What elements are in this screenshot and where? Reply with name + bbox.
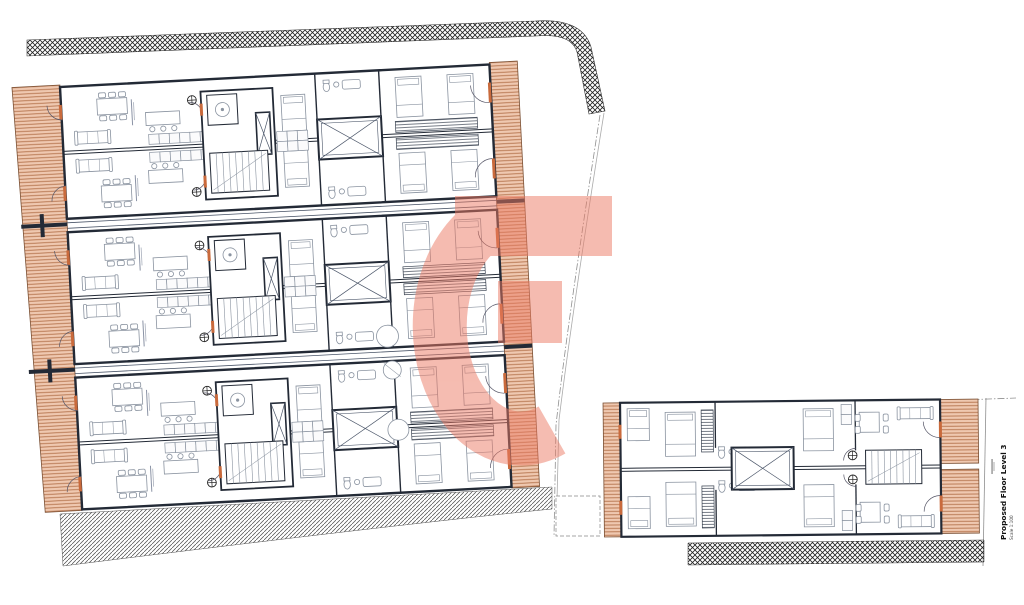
kitchen-counter <box>196 441 207 452</box>
kitchen-counter <box>198 295 209 306</box>
kitchen-counter <box>285 286 296 297</box>
door-threshold <box>618 425 621 439</box>
pillow <box>288 178 307 185</box>
kitchen-counter <box>160 151 171 162</box>
kitchen-counter <box>185 441 196 452</box>
sofa-arm <box>74 131 78 145</box>
floor-plan-sheet: Proposed Floor Level 3 Scale 1:100 <box>0 0 1024 605</box>
sofa <box>76 131 109 145</box>
stool <box>187 416 192 421</box>
chair <box>112 348 119 353</box>
bathroom-fixture <box>336 332 342 336</box>
bathroom-fixture <box>339 189 344 194</box>
chair <box>100 116 107 121</box>
kitchen-counter <box>305 285 316 296</box>
small-annotation-mark <box>994 462 995 471</box>
sofa-arm <box>897 407 900 420</box>
chair <box>883 414 888 421</box>
stool <box>174 162 179 167</box>
stool <box>189 453 194 458</box>
kitchen-counter <box>298 140 309 151</box>
kitchen-counter <box>169 133 180 144</box>
dining-table <box>101 184 132 202</box>
bathroom-fixture <box>344 477 350 481</box>
pillow <box>303 469 322 476</box>
bathroom-fixture <box>354 479 359 484</box>
pillow <box>669 518 694 524</box>
drawing-scale: Scale 1:100 <box>1009 515 1014 540</box>
chair <box>114 383 121 388</box>
kitchen-counter <box>159 133 170 144</box>
kitchen-counter <box>179 132 190 143</box>
sofa <box>92 421 125 435</box>
dining-table <box>116 475 147 493</box>
kitchen-counter <box>150 152 161 163</box>
watermark-top-bar <box>455 196 612 256</box>
pillow <box>449 76 470 83</box>
kitchen-counter <box>164 424 175 435</box>
chair <box>135 405 142 410</box>
party-wall-hatch-south <box>688 540 984 565</box>
small-annotation-mark <box>992 459 993 474</box>
kitchen-counter <box>205 422 216 433</box>
sofa <box>84 276 117 290</box>
sofa-arm <box>116 303 120 317</box>
pillow <box>418 475 439 482</box>
chair <box>121 324 128 329</box>
sofa-arm <box>83 304 87 318</box>
chair <box>123 178 130 183</box>
kitchen-counter <box>187 278 198 289</box>
bathroom-fixture <box>342 79 360 89</box>
stool <box>176 417 181 422</box>
kitchen-counter <box>302 421 313 432</box>
chair <box>124 383 131 388</box>
pillow <box>403 184 424 191</box>
kitchen-counter <box>188 296 199 307</box>
kitchen-counter <box>180 150 191 161</box>
bathroom-fixture <box>719 481 725 484</box>
door-threshold <box>219 466 223 478</box>
pillow <box>806 411 831 417</box>
kitchen-counter <box>165 442 176 453</box>
pillow <box>807 519 832 525</box>
bathroom-fixture <box>357 370 375 380</box>
bathroom-fixture <box>349 372 354 377</box>
kitchen-counter <box>177 278 188 289</box>
kitchen-counter <box>149 134 160 145</box>
kitchen-counter <box>295 286 306 297</box>
dashed-outline-area <box>556 496 600 536</box>
bathroom-fixture <box>363 477 381 487</box>
chair <box>114 202 121 207</box>
stool <box>179 271 184 276</box>
pillow <box>283 96 302 103</box>
bathroom-fixture <box>329 187 335 191</box>
kitchen-island <box>148 169 183 184</box>
door-threshold <box>211 321 215 333</box>
stool <box>168 271 173 276</box>
pillow <box>291 242 310 249</box>
sofa <box>900 516 932 527</box>
kitchen-counter <box>292 432 303 443</box>
kitchen-counter <box>292 422 303 433</box>
sofa-arm <box>91 450 95 464</box>
stool <box>167 454 172 459</box>
wardrobe <box>701 410 713 452</box>
kitchen-counter <box>277 131 288 142</box>
floor-plan-canvas: Proposed Floor Level 3 Scale 1:100 <box>0 0 1024 605</box>
sofa <box>78 158 111 172</box>
sofa-arm <box>123 420 127 434</box>
chair <box>856 504 861 511</box>
pillow <box>299 387 318 394</box>
kitchen-counter <box>312 421 323 432</box>
kitchen-island <box>161 401 196 416</box>
chair <box>127 260 134 265</box>
wardrobe <box>702 486 714 528</box>
kitchen-counter <box>305 275 316 286</box>
stool <box>163 163 168 168</box>
small-building-group <box>603 399 979 537</box>
kitchen-island <box>156 314 191 329</box>
kitchen-counter <box>842 520 852 530</box>
kitchen-counter <box>157 297 168 308</box>
stool <box>159 309 164 314</box>
kitchen-counter <box>174 424 185 435</box>
title-block: Proposed Floor Level 3 Scale 1:100 <box>992 444 1015 540</box>
stool <box>172 125 177 130</box>
chair <box>98 93 105 98</box>
kitchen-counter <box>175 442 186 453</box>
chair <box>120 115 127 120</box>
chair <box>119 493 126 498</box>
kitchen-counter <box>190 132 201 143</box>
pillow <box>668 414 693 420</box>
sofa-arm <box>90 422 94 436</box>
door-threshold <box>215 394 219 406</box>
chair <box>110 115 117 120</box>
stool <box>178 453 183 458</box>
chair <box>131 324 138 329</box>
sofa-arm <box>107 129 111 143</box>
chair <box>106 238 113 243</box>
dining-table <box>109 330 140 348</box>
chair <box>107 261 114 266</box>
pillow <box>455 181 476 188</box>
chair <box>125 406 132 411</box>
bathroom-fixture <box>334 82 339 87</box>
bathroom-fixture <box>347 334 352 339</box>
stool <box>152 163 157 168</box>
stool <box>181 308 186 313</box>
chair <box>111 325 118 330</box>
bathroom-fixture <box>331 225 337 229</box>
stool <box>165 417 170 422</box>
chair <box>115 406 122 411</box>
kitchen-counter <box>841 404 851 414</box>
chair <box>883 426 888 433</box>
kitchen-counter <box>191 150 202 161</box>
dining-table <box>97 98 128 116</box>
sofa <box>93 449 126 463</box>
sofa-arm <box>115 275 119 289</box>
small-building-plan <box>603 399 984 565</box>
sofa-arm <box>109 157 113 171</box>
terrace-strip-east <box>941 469 980 533</box>
door-threshold <box>619 501 622 515</box>
kitchen-counter <box>197 277 208 288</box>
kitchen-counter <box>313 431 324 442</box>
chair <box>124 201 131 206</box>
sofa <box>85 304 118 318</box>
kitchen-counter <box>842 510 852 520</box>
stool <box>170 308 175 313</box>
chair <box>104 202 111 207</box>
bathroom-fixture <box>338 371 344 375</box>
chair <box>126 237 133 242</box>
chair <box>132 347 139 352</box>
chair <box>855 414 860 421</box>
chair <box>103 180 110 185</box>
bathroom-fixture <box>355 331 373 341</box>
terrace-strip-east <box>940 399 979 463</box>
chair <box>884 504 889 511</box>
kitchen-counter <box>184 423 195 434</box>
bathroom-fixture <box>341 227 346 232</box>
dining-table <box>104 243 135 261</box>
kitchen-counter <box>297 130 308 141</box>
kitchen-counter <box>295 276 306 287</box>
kitchen-island <box>145 111 180 126</box>
kitchen-counter <box>287 131 298 142</box>
kitchen-counter <box>170 151 181 162</box>
bathroom-fixture <box>348 186 366 196</box>
kitchen-counter <box>303 431 314 442</box>
dining-table <box>859 412 879 432</box>
kitchen-island <box>164 459 199 474</box>
kitchen-counter <box>178 296 189 307</box>
kitchen-island <box>153 256 188 271</box>
kitchen-counter <box>167 297 178 308</box>
chair <box>113 179 120 184</box>
pillow <box>631 521 648 527</box>
chair <box>139 492 146 497</box>
sofa-arm <box>76 159 80 173</box>
door-threshold <box>207 249 211 261</box>
chair <box>134 382 141 387</box>
kitchen-counter <box>841 414 851 424</box>
boundary-line <box>557 113 604 500</box>
kitchen-counter <box>284 276 295 287</box>
kitchen-counter <box>167 279 178 290</box>
sofa-arm <box>931 515 934 528</box>
watermark-mid-bar <box>498 281 562 343</box>
door-threshold <box>200 104 204 116</box>
chair <box>118 470 125 475</box>
pillow <box>405 224 426 231</box>
sofa-arm <box>82 276 86 290</box>
bathroom-fixture <box>323 80 329 84</box>
chair <box>122 347 129 352</box>
sofa-arm <box>930 407 933 420</box>
bathroom-fixture <box>718 447 724 450</box>
chair <box>884 516 889 523</box>
pillow <box>295 324 314 331</box>
drawing-title: Proposed Floor Level 3 <box>999 444 1008 540</box>
sofa-arm <box>124 448 128 462</box>
chair <box>128 470 135 475</box>
pillow <box>398 78 419 85</box>
sofa-arm <box>898 515 901 528</box>
stool <box>161 126 166 131</box>
dining-table <box>112 388 143 406</box>
door-threshold <box>203 175 207 187</box>
kitchen-counter <box>277 141 288 152</box>
kitchen-counter <box>287 141 298 152</box>
kitchen-counter <box>156 279 167 290</box>
chair <box>108 92 115 97</box>
stool <box>150 126 155 131</box>
door-threshold <box>940 495 943 511</box>
chair <box>117 260 124 265</box>
terrace-strip-west <box>603 403 621 537</box>
door-threshold <box>939 421 942 437</box>
chair <box>855 426 860 433</box>
chair <box>129 493 136 498</box>
chair <box>118 92 125 97</box>
sofa <box>899 408 931 419</box>
kitchen-counter <box>195 423 206 434</box>
pillow <box>630 411 647 417</box>
stool <box>157 272 162 277</box>
chair <box>116 237 123 242</box>
apartment-strip <box>46 64 497 219</box>
kitchen-counter <box>206 440 217 451</box>
chair <box>138 469 145 474</box>
bathroom-fixture <box>350 225 368 235</box>
pillow <box>470 472 491 479</box>
dining-table <box>860 502 880 522</box>
chair <box>856 516 861 523</box>
